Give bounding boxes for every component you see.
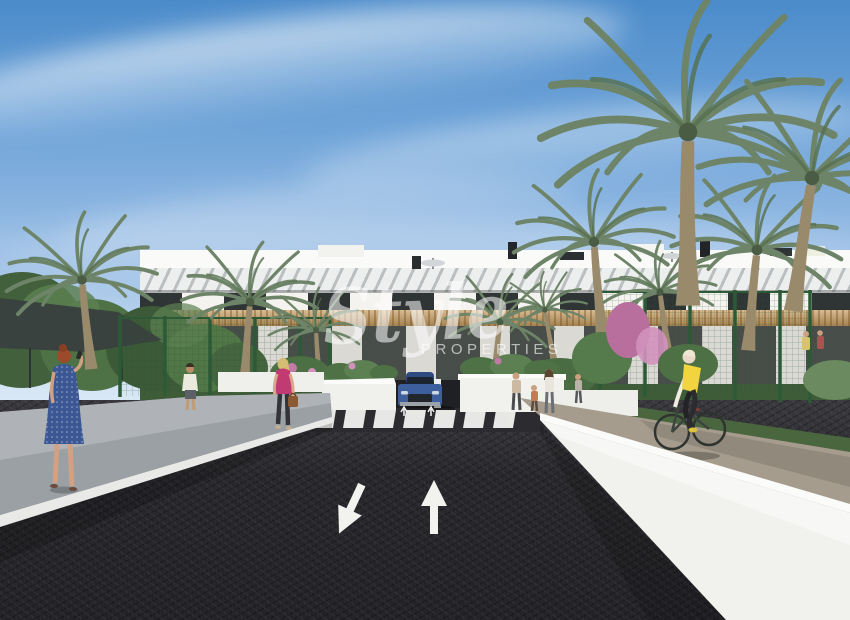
road-arrow-away-icon bbox=[421, 480, 447, 534]
watermark-subtitle: PROPERTIES bbox=[421, 341, 562, 358]
terrace-residents bbox=[802, 330, 824, 350]
scene: Style PROPERTIES bbox=[0, 0, 850, 620]
planter-left bbox=[322, 360, 398, 410]
low-white-wall-left bbox=[218, 372, 324, 392]
road-arrow-toward-viewer-icon bbox=[327, 479, 373, 539]
